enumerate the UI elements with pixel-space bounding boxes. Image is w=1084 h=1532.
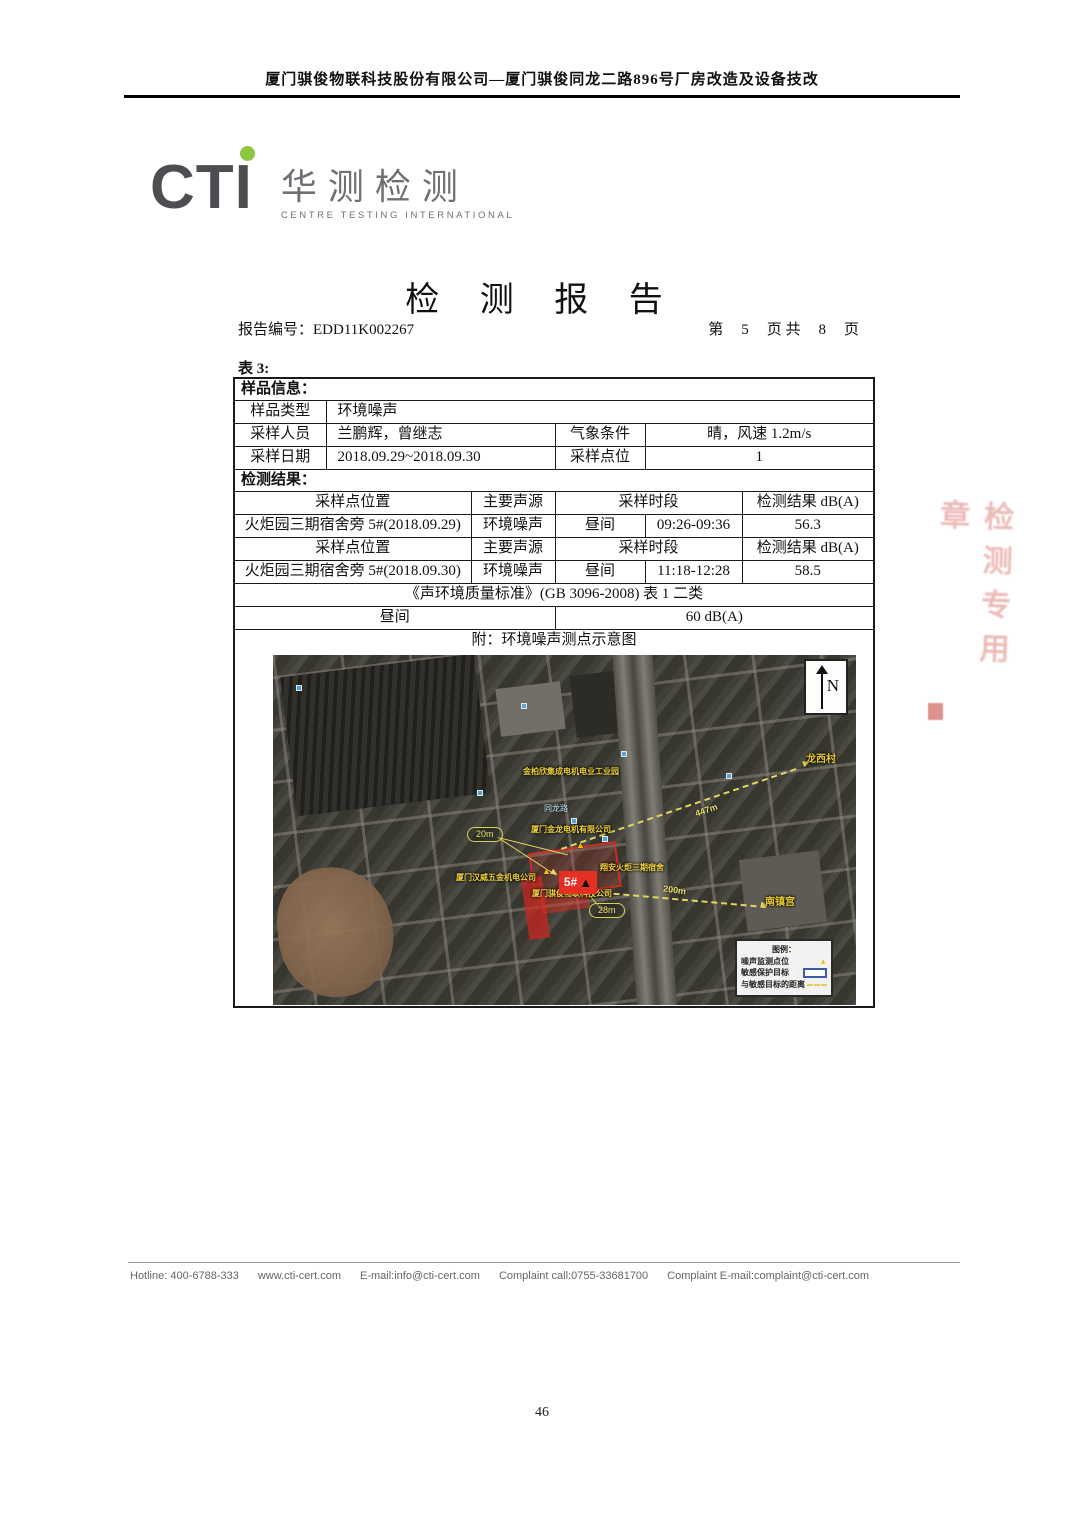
header-rule (124, 95, 960, 98)
standard-reference: 《声环境质量标准》(GB 3096-2008) 表 1 二类 (234, 583, 874, 606)
north-arrow-icon (821, 669, 823, 709)
document-header: 厦门骐俊物联科技股份有限公司—厦门骐俊同龙二路896号厂房改造及设备技改 (0, 68, 1084, 89)
monitoring-point-icon: ▲ (576, 841, 585, 850)
page-info: 第5页 共8页 (699, 318, 868, 339)
report-meta: 报告编号：EDD11K002267 第5页 共8页 (238, 318, 868, 339)
north-label: N (827, 675, 839, 696)
map-label-factory-left: 厦门汉威五金机电公司 (456, 873, 536, 883)
limit-value: 60 dB(A) (555, 606, 874, 629)
results-table: 样品信息： 样品类型 环境噪声 采样人员 兰鹏辉，曾继志 气象条件 晴，风速 1… (233, 377, 875, 1008)
legend-item-sensitive-target: 敏感保护目标 (741, 967, 827, 979)
table-row: 采样人员 兰鹏辉，曾继志 气象条件 晴，风速 1.2m/s (234, 423, 874, 446)
col-header-source: 主要声源 (471, 491, 555, 514)
col-header-source: 主要声源 (471, 537, 555, 560)
footer-website: www.cti-cert.com (258, 1270, 341, 1282)
sensitive-target-marker (521, 703, 527, 709)
section-results: 检测结果： (234, 469, 874, 491)
footer-contacts: Hotline: 400-6788-333 www.cti-cert.com E… (130, 1270, 960, 1282)
legend-item-noise-point: 噪声监测点位 ▲ (741, 956, 827, 968)
legend-item-distance: 与敏感目标的距离 (741, 979, 827, 991)
legend-label: 敏感保护目标 (741, 967, 789, 979)
report-number-label: 报告编号： (238, 322, 313, 338)
weather-value: 晴，风速 1.2m/s (645, 423, 874, 446)
page-info-mid: 页 共 (767, 322, 801, 338)
sample-type-value: 环境噪声 (326, 400, 874, 423)
report-title: 检 测 报 告 (0, 272, 1084, 321)
legend-triangle-icon: ▲ (819, 956, 827, 968)
cti-logo: CTI 华测检测 CENTRE TESTING INTERNATIONAL (150, 158, 514, 221)
cti-logo-acronym: CTI (150, 158, 253, 218)
map-legend: 图例： 噪声监测点位 ▲ 敏感保护目标 与敏感目标的距离 (735, 939, 833, 997)
result-source: 环境噪声 (471, 560, 555, 583)
table-row: 样品信息： (234, 378, 874, 400)
col-header-period: 采样时段 (555, 537, 742, 560)
legend-title: 图例： (741, 944, 827, 956)
legend-label: 噪声监测点位 (741, 956, 789, 968)
legend-dashed-line-icon (807, 984, 827, 986)
result-period: 昼间 (555, 514, 645, 537)
marker-label: 5# (564, 875, 577, 890)
page-number: 46 (0, 1405, 1084, 1421)
table-row: 采样点位置 主要声源 采样时段 检测结果 dB(A) (234, 537, 874, 560)
sensitive-target-marker (726, 773, 732, 779)
section-sample-info: 样品信息： (234, 378, 874, 400)
monitoring-point-icon: ▲ (542, 867, 551, 876)
sensitive-target-marker (621, 751, 627, 757)
noise-monitoring-map: ▲ ▲ 5# ▲ 金柏欣集成电机电业工业园 同龙路 厦门金龙电机有限公司 厦门汉… (273, 655, 856, 1005)
table-caption: 表 3: (238, 357, 269, 378)
north-arrow-box: N (804, 659, 848, 715)
sensitive-target-marker (602, 836, 608, 842)
sensitive-target-marker (296, 685, 302, 691)
marker-triangle-icon: ▲ (579, 876, 592, 889)
points-value: 1 (645, 446, 874, 469)
result-value: 58.5 (742, 560, 874, 583)
map-block (495, 681, 565, 737)
map-label-road: 同龙路 (544, 804, 568, 814)
footer-complaint-email: Complaint E-mail:complaint@cti-cert.com (667, 1270, 869, 1282)
date-value: 2018.09.29~2018.09.30 (326, 446, 555, 469)
result-location: 火炬园三期宿舍旁 5#(2018.09.30) (234, 560, 471, 583)
legend-rectangle-icon (803, 968, 827, 978)
legend-label: 与敏感目标的距离 (741, 979, 805, 991)
north-arrowhead-icon (816, 665, 828, 674)
cti-logo-text: CTI (150, 153, 253, 222)
map-block (739, 851, 827, 932)
col-header-location: 采样点位置 (234, 491, 471, 514)
report-number-value: EDD11K002267 (313, 322, 414, 338)
points-label: 采样点位 (555, 446, 645, 469)
page-info-prefix: 第 (708, 322, 723, 338)
map-label-temple: 南镇宫 (765, 897, 795, 910)
cti-logo-names: 华测检测 CENTRE TESTING INTERNATIONAL (281, 158, 514, 221)
weather-label: 气象条件 (555, 423, 645, 446)
result-location: 火炬园三期宿舍旁 5#(2018.09.29) (234, 514, 471, 537)
footer-rule (128, 1262, 960, 1263)
cti-logo-green-dot-icon (240, 146, 255, 161)
table-row: 火炬园三期宿舍旁 5#(2018.09.29) 环境噪声 昼间 09:26-09… (234, 514, 874, 537)
footer-hotline: Hotline: 400-6788-333 (130, 1270, 239, 1282)
table-row: 昼间 60 dB(A) (234, 606, 874, 629)
map-label-village: 龙西村 (806, 754, 836, 767)
attachment-note: 附：环境噪声测点示意图 (241, 631, 867, 650)
report-page: 厦门骐俊物联科技股份有限公司—厦门骐俊同龙二路896号厂房改造及设备技改 CTI… (0, 0, 1084, 1532)
map-label-dorm: 翔安火炬三期宿舍 (600, 863, 664, 873)
cti-logo-en-name: CENTRE TESTING INTERNATIONAL (281, 210, 514, 221)
footer-complaint-call: Complaint call:0755-33681700 (499, 1270, 648, 1282)
map-label-factory-mid: 厦门金龙电机有限公司 (531, 825, 611, 835)
col-header-period: 采样时段 (555, 491, 742, 514)
limit-period: 昼间 (234, 606, 555, 629)
col-header-location: 采样点位置 (234, 537, 471, 560)
date-label: 采样日期 (234, 446, 326, 469)
col-header-result: 检测结果 dB(A) (742, 537, 874, 560)
table-row: 检测结果： (234, 469, 874, 491)
table-row: 采样点位置 主要声源 采样时段 检测结果 dB(A) (234, 491, 874, 514)
result-period: 昼间 (555, 560, 645, 583)
page-info-current: 5 (741, 322, 749, 338)
table-row: 火炬园三期宿舍旁 5#(2018.09.30) 环境噪声 昼间 11:18-12… (234, 560, 874, 583)
table-row: 《声环境质量标准》(GB 3096-2008) 表 1 二类 (234, 583, 874, 606)
sensitive-target-marker (477, 790, 483, 796)
table-row: 样品类型 环境噪声 (234, 400, 874, 423)
result-value: 56.3 (742, 514, 874, 537)
table-row: 采样日期 2018.09.29~2018.09.30 采样点位 1 (234, 446, 874, 469)
footer-email: E-mail:info@cti-cert.com (360, 1270, 480, 1282)
page-info-suffix: 页 (844, 322, 859, 338)
sample-type-label: 样品类型 (234, 400, 326, 423)
map-dark-block (280, 655, 491, 816)
sensitive-target-marker (571, 818, 577, 824)
page-info-total: 8 (818, 322, 826, 338)
map-label-factory-top: 金柏欣集成电机电业工业园 (523, 767, 619, 777)
report-number: 报告编号：EDD11K002267 (238, 318, 414, 339)
monitoring-point-5-marker: 5# ▲ (559, 871, 597, 894)
map-cell: 附：环境噪声测点示意图 (234, 629, 874, 1007)
sampler-label: 采样人员 (234, 423, 326, 446)
col-header-result: 检测结果 dB(A) (742, 491, 874, 514)
result-time: 11:18-12:28 (645, 560, 742, 583)
table-row: 附：环境噪声测点示意图 (234, 629, 874, 1007)
sampler-value: 兰鹏辉，曾继志 (326, 423, 555, 446)
distance-label-20m: 20m (467, 827, 503, 842)
distance-label-28m: 28m (589, 903, 625, 918)
result-source: 环境噪声 (471, 514, 555, 537)
result-time: 09:26-09:36 (645, 514, 742, 537)
red-seal-fragment: 检测专用章 (922, 499, 1017, 717)
cti-logo-cn-name: 华测检测 (281, 168, 514, 206)
